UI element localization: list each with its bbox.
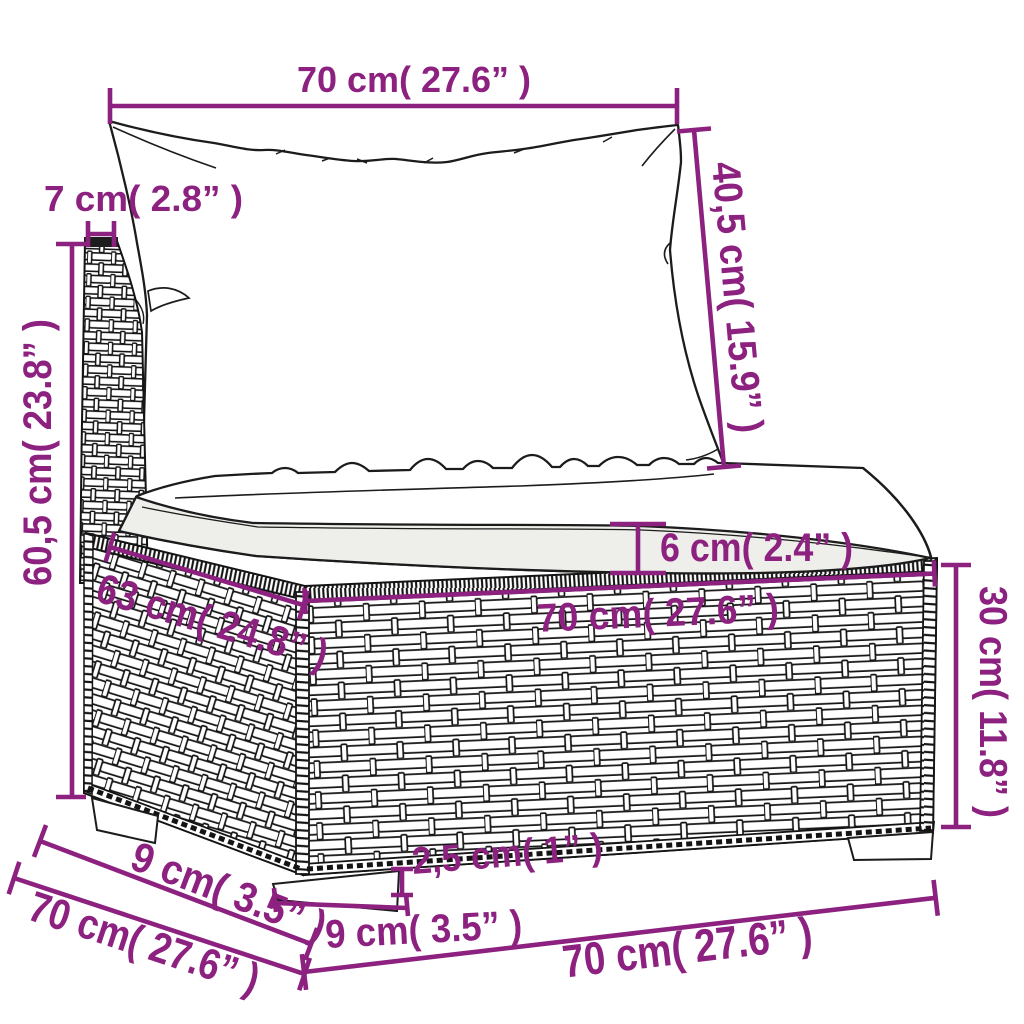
svg-text:7 cm( 2.8” ): 7 cm( 2.8” ) — [44, 178, 243, 219]
svg-text:30 cm( 11.8” ): 30 cm( 11.8” ) — [971, 586, 1014, 818]
svg-text:6 cm( 2.4” ): 6 cm( 2.4” ) — [660, 526, 853, 570]
svg-text:60,5 cm( 23.8” ): 60,5 cm( 23.8” ) — [16, 319, 60, 586]
svg-text:70 cm( 27.6” ): 70 cm( 27.6” ) — [297, 59, 531, 100]
